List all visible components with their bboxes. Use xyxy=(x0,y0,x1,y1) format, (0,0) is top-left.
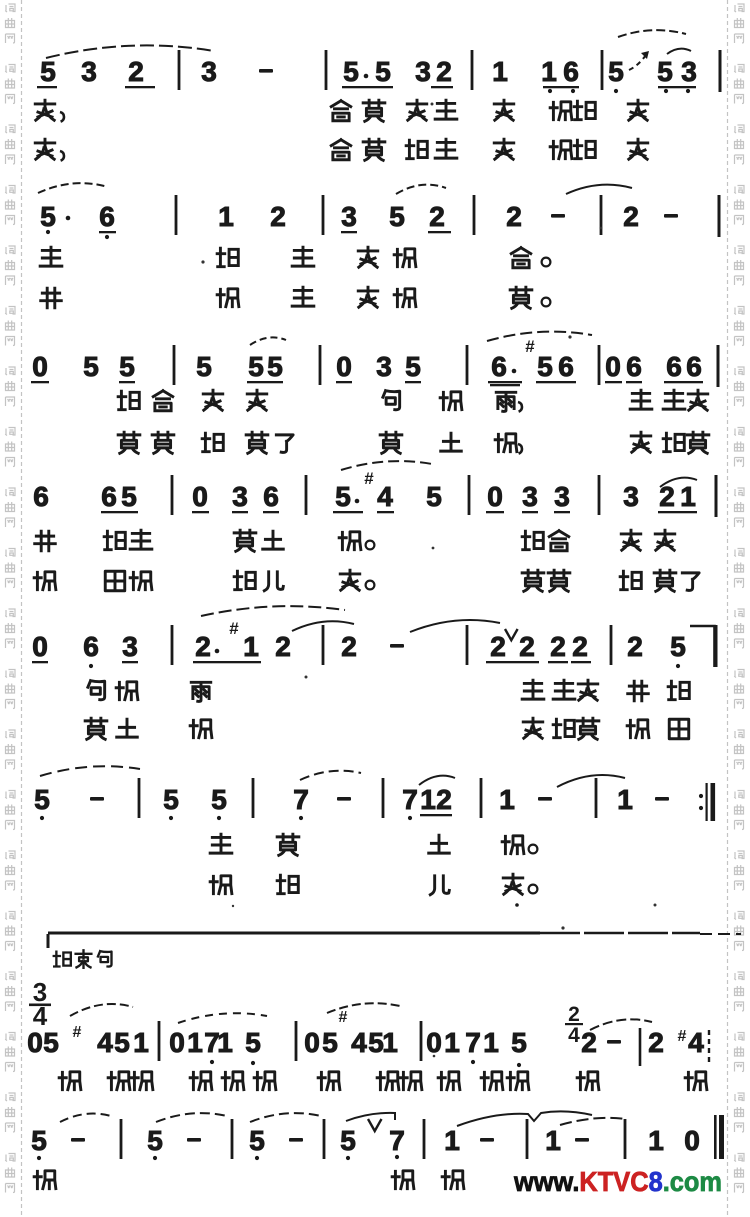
svg-text:6: 6 xyxy=(686,351,702,382)
svg-text:1: 1 xyxy=(492,56,508,87)
svg-text:5: 5 xyxy=(511,1027,527,1058)
svg-text:2: 2 xyxy=(550,631,566,662)
svg-text:5: 5 xyxy=(83,351,99,382)
svg-text:#: # xyxy=(339,1009,348,1026)
svg-text:0: 0 xyxy=(426,1027,442,1058)
svg-text:2: 2 xyxy=(572,631,588,662)
svg-text:5: 5 xyxy=(31,1125,47,1156)
svg-text:5: 5 xyxy=(43,1027,59,1058)
svg-text:5: 5 xyxy=(34,784,50,815)
svg-text:5: 5 xyxy=(343,56,359,87)
svg-text:3: 3 xyxy=(232,481,248,512)
svg-text:1: 1 xyxy=(499,784,515,815)
svg-text:0: 0 xyxy=(27,1027,43,1058)
svg-text:2: 2 xyxy=(627,631,643,662)
svg-text:6: 6 xyxy=(99,201,115,232)
svg-text:0: 0 xyxy=(32,631,48,662)
svg-text:3: 3 xyxy=(554,481,570,512)
svg-text:0: 0 xyxy=(169,1027,185,1058)
svg-text:1: 1 xyxy=(243,631,259,662)
svg-text:2: 2 xyxy=(341,631,357,662)
svg-text:4: 4 xyxy=(351,1027,367,1058)
svg-text:4: 4 xyxy=(377,481,393,512)
svg-text:5: 5 xyxy=(147,1125,163,1156)
svg-text:5: 5 xyxy=(335,481,351,512)
svg-text:5: 5 xyxy=(119,351,135,382)
svg-text:3: 3 xyxy=(81,56,97,87)
svg-text:1: 1 xyxy=(218,201,234,232)
svg-text:5: 5 xyxy=(340,1125,356,1156)
svg-text:7: 7 xyxy=(465,1027,481,1058)
svg-text:0: 0 xyxy=(487,481,503,512)
svg-text:1: 1 xyxy=(444,1027,460,1058)
svg-text:5: 5 xyxy=(40,201,56,232)
svg-text:3: 3 xyxy=(201,56,217,87)
svg-text:4: 4 xyxy=(688,1027,704,1058)
svg-text:5: 5 xyxy=(537,351,553,382)
svg-text:5: 5 xyxy=(657,56,673,87)
svg-text:6: 6 xyxy=(491,351,507,382)
svg-text:0: 0 xyxy=(336,351,352,382)
svg-text:2: 2 xyxy=(506,201,522,232)
svg-text:#: # xyxy=(364,469,374,488)
svg-text:6: 6 xyxy=(33,481,49,512)
svg-text:5: 5 xyxy=(608,56,624,87)
svg-text:1: 1 xyxy=(541,56,557,87)
svg-text:0: 0 xyxy=(32,351,48,382)
svg-text:3: 3 xyxy=(522,481,538,512)
svg-text:5: 5 xyxy=(426,481,442,512)
svg-text:3: 3 xyxy=(623,481,639,512)
svg-text:3: 3 xyxy=(681,56,697,87)
svg-text:#: # xyxy=(678,1028,687,1045)
svg-text:#: # xyxy=(525,337,535,356)
svg-text:3: 3 xyxy=(415,56,431,87)
svg-text:6: 6 xyxy=(563,56,579,87)
svg-text:2: 2 xyxy=(195,631,211,662)
svg-text:6: 6 xyxy=(626,351,642,382)
svg-text:5: 5 xyxy=(196,351,212,382)
svg-text:2: 2 xyxy=(490,631,506,662)
svg-text:6: 6 xyxy=(101,481,117,512)
svg-text:1: 1 xyxy=(648,1125,664,1156)
svg-text:5: 5 xyxy=(375,56,391,87)
svg-text:1: 1 xyxy=(617,784,633,815)
svg-text:2: 2 xyxy=(128,56,144,87)
svg-text:7: 7 xyxy=(293,784,309,815)
svg-text:6: 6 xyxy=(263,481,279,512)
svg-text:5: 5 xyxy=(40,56,56,87)
svg-text:3: 3 xyxy=(341,201,357,232)
svg-text:7: 7 xyxy=(389,1125,405,1156)
svg-text:5: 5 xyxy=(249,1125,265,1156)
svg-text:4: 4 xyxy=(568,1024,580,1047)
svg-text:0: 0 xyxy=(605,351,621,382)
svg-text:1: 1 xyxy=(483,1027,499,1058)
svg-text:#: # xyxy=(229,619,239,638)
svg-text:1: 1 xyxy=(217,1027,233,1058)
svg-text:5: 5 xyxy=(389,201,405,232)
svg-text:5: 5 xyxy=(163,784,179,815)
svg-text:2: 2 xyxy=(270,201,286,232)
svg-text:2: 2 xyxy=(623,201,639,232)
svg-text:1: 1 xyxy=(382,1027,398,1058)
svg-text:2: 2 xyxy=(648,1027,664,1058)
svg-text:1: 1 xyxy=(680,481,696,512)
svg-text:5: 5 xyxy=(245,1027,261,1058)
svg-text:1: 1 xyxy=(420,784,436,815)
svg-text:5: 5 xyxy=(267,351,283,382)
svg-text:6: 6 xyxy=(666,351,682,382)
svg-text:5: 5 xyxy=(670,631,686,662)
svg-text:2: 2 xyxy=(581,1027,597,1058)
svg-text:5: 5 xyxy=(121,481,137,512)
svg-text:1: 1 xyxy=(187,1027,203,1058)
svg-text:5: 5 xyxy=(114,1027,130,1058)
svg-text:7: 7 xyxy=(402,784,418,815)
svg-text:5: 5 xyxy=(405,351,421,382)
svg-text:#: # xyxy=(73,1024,82,1041)
svg-text:1: 1 xyxy=(545,1125,561,1156)
svg-text:1: 1 xyxy=(444,1125,460,1156)
svg-text:3: 3 xyxy=(376,351,392,382)
svg-text:2: 2 xyxy=(568,1003,580,1026)
svg-text:1: 1 xyxy=(133,1027,149,1058)
svg-text:2: 2 xyxy=(519,631,535,662)
svg-text:5: 5 xyxy=(322,1027,338,1058)
svg-text:5: 5 xyxy=(248,351,264,382)
svg-text:4: 4 xyxy=(97,1027,113,1058)
svg-text:6: 6 xyxy=(83,631,99,662)
svg-text:2: 2 xyxy=(429,201,445,232)
svg-text:3: 3 xyxy=(122,631,138,662)
svg-text:0: 0 xyxy=(304,1027,320,1058)
svg-text:5: 5 xyxy=(211,784,227,815)
svg-text:2: 2 xyxy=(436,56,452,87)
svg-text:www.KTVC8.com: www.KTVC8.com xyxy=(513,1166,722,1197)
svg-text:2: 2 xyxy=(436,784,452,815)
svg-text:6: 6 xyxy=(558,351,574,382)
svg-text:0: 0 xyxy=(192,481,208,512)
svg-text:0: 0 xyxy=(684,1125,700,1156)
svg-text:2: 2 xyxy=(275,631,291,662)
